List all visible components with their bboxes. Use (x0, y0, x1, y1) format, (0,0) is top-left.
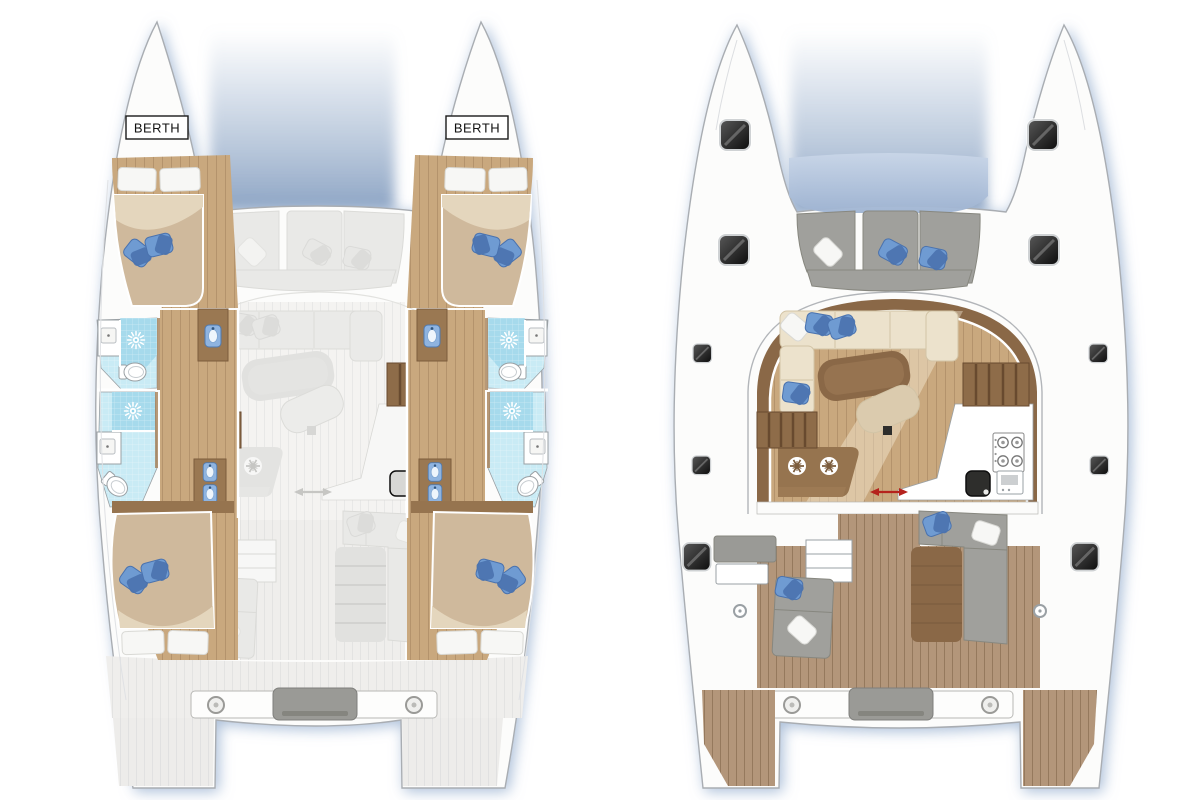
bow-gap-shading (210, 30, 395, 212)
lower-deck-plan: BERTH BERTH (96, 22, 548, 788)
berth-label-starboard: BERTH (446, 116, 508, 139)
forward-cockpit-seating (797, 211, 980, 291)
berth-label-starboard-text: BERTH (454, 121, 500, 136)
berth-label-port: BERTH (126, 116, 188, 139)
foredeck-window (789, 153, 988, 213)
aft-platform-beam (767, 688, 1013, 720)
port-hull-cabins (97, 155, 238, 700)
aft-bulkhead (757, 502, 1038, 514)
floorplan-svg: BERTH BERTH (0, 0, 1200, 800)
starboard-hull-cabins (407, 155, 548, 700)
catamaran-floorplans: BERTH BERTH (0, 0, 1200, 800)
aft-platform-beam (191, 688, 437, 720)
ghost-forward-seating (221, 211, 404, 291)
main-deck-plan (674, 25, 1128, 788)
berth-label-port-text: BERTH (134, 121, 180, 136)
